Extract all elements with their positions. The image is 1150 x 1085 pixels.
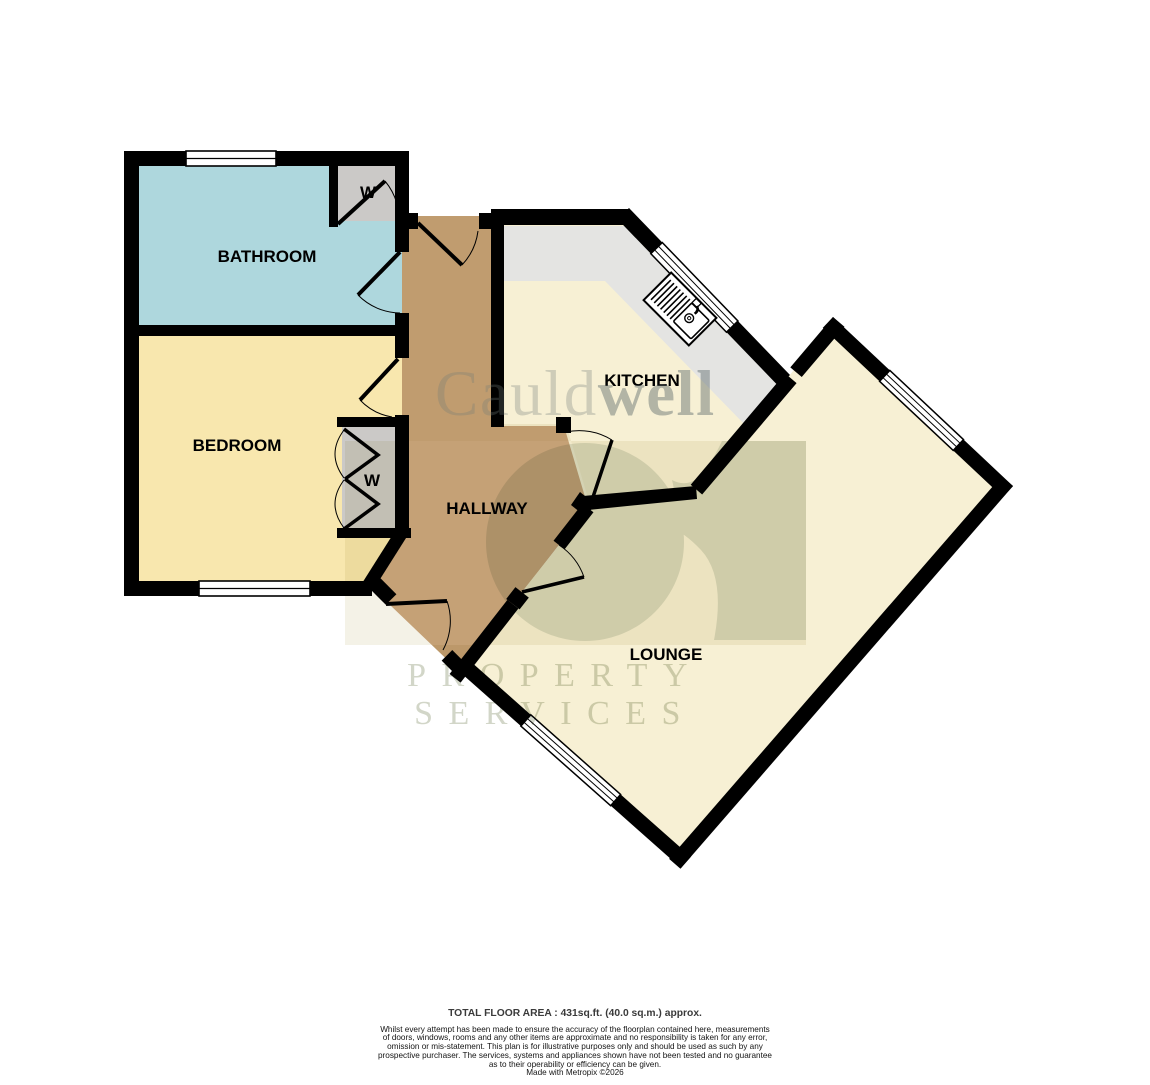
svg-text:BATHROOM: BATHROOM — [218, 247, 317, 266]
svg-text:W: W — [360, 183, 377, 202]
svg-text:BEDROOM: BEDROOM — [193, 436, 282, 455]
svg-text:SERVICES: SERVICES — [414, 695, 696, 732]
svg-text:PROPERTY: PROPERTY — [407, 657, 703, 694]
svg-text:Cauldwell: Cauldwell — [435, 358, 716, 430]
